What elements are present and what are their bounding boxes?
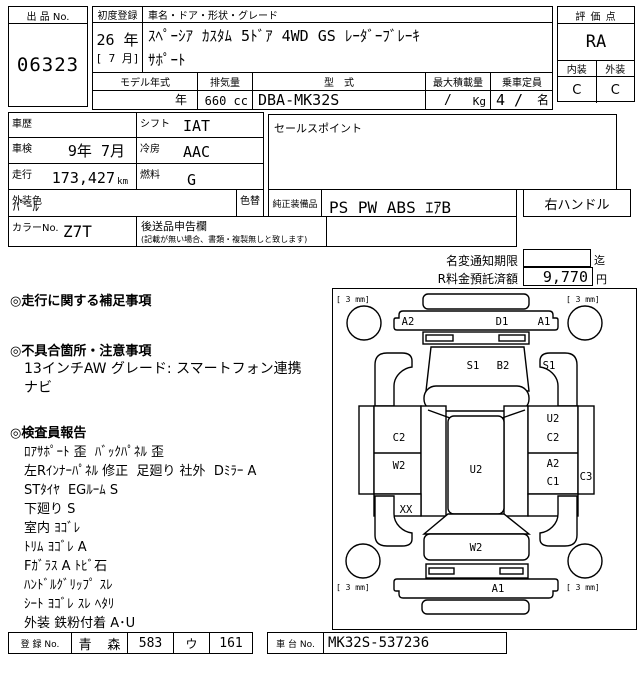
interior-label: 内装 [558, 61, 597, 76]
chassis-no: MK32S-537236 [324, 633, 506, 653]
diagram-code: A1 [492, 583, 505, 595]
sales-point-box: セールスポイント [268, 114, 617, 190]
right-pillar-column [504, 406, 528, 516]
rear-right-tire [568, 544, 602, 578]
shift-value: IAT [183, 117, 210, 135]
reg-number: 161 [210, 633, 252, 653]
tire-depth-front-right: [ 3 mm] [566, 295, 600, 304]
history-label: 車歴 [12, 115, 32, 130]
diagram-code: XX [400, 504, 413, 516]
report-line: Fｶﾞﾗｽ A ﾄﾋﾞ石 [24, 555, 107, 573]
first-registration-label: 初度登録 [93, 7, 143, 23]
max-load-slash: / [444, 93, 452, 108]
model-code-value: DBA-MK32S [253, 91, 426, 110]
diagram-code: W2 [470, 542, 483, 554]
tire-depth-front-left: [ 3 mm] [336, 295, 370, 304]
left-front-fender [375, 353, 412, 406]
tire-depth-rear-left: [ 3 mm] [336, 583, 370, 592]
report-line: ｼｰﾄ ﾖｺﾞﾚ ｽﾚ ﾍﾀﾘ [24, 593, 114, 611]
diagram-code: C3 [580, 471, 593, 483]
reg-kana: ウ [174, 633, 210, 653]
capacity-number: 4 / [496, 91, 523, 109]
handle-box: 右ハンドル [523, 189, 631, 217]
model-code-label: 型 式 [253, 73, 426, 91]
fuel-cell: 燃料 G [136, 163, 264, 191]
left-door-panels [374, 406, 421, 494]
equipment-row: 純正装備品 PS PW ABS ｴｱB [268, 189, 517, 217]
report-line: ﾄﾘﾑ ﾖｺﾞﾚ A [24, 536, 87, 554]
first-registration-month: [ 7 月] [93, 50, 142, 66]
mileage-unit: km [117, 177, 128, 187]
model-code-text: DBA-MK32S [258, 91, 339, 109]
damage-diagram: A2 D1 A1 S1 B2 S1 C2 W2 U2 U2 C2 A2 C1 C… [332, 288, 637, 630]
exterior-color-cell: 外装色 ﾊﾟｰﾙ 色替 [8, 189, 264, 218]
chassis-table: 車 台 No. MK32S-537236 [267, 632, 507, 654]
score-label: 評 価 点 [558, 7, 634, 24]
max-load-value: / Kg [426, 91, 491, 110]
car-name-label: 車名・ドア・形状・グレード [143, 7, 553, 23]
exterior-label: 外装 [597, 61, 635, 76]
rear-cowl-right-lamp [500, 568, 523, 574]
interior-grade: C [558, 77, 597, 103]
late-items-label: 後送品申告欄 [141, 218, 327, 234]
recycle-fee-amount: 9,770 [523, 267, 593, 286]
diagram-code: C2 [393, 432, 406, 444]
diagram-code: U2 [547, 413, 560, 425]
exterior-grade: C [597, 77, 635, 103]
diagram-code: B2 [497, 360, 510, 372]
diagram-code: A2 [547, 458, 560, 470]
front-cowl-left-vent [426, 335, 453, 341]
report-line: STﾀｲﾔ EGﾙｰﾑ S [24, 479, 118, 497]
late-items-note: (記載が無い場合、書類・複製無しと致します) [141, 234, 327, 245]
fuel-label: 燃料 [140, 166, 160, 181]
front-left-tire [347, 306, 381, 340]
name-change-label: 名変通知期限 [400, 252, 518, 269]
shift-cell: シフト IAT [136, 112, 264, 139]
left-pillar-column [421, 406, 446, 516]
diagram-code: U2 [470, 464, 483, 476]
rear-bumper [394, 579, 558, 598]
defect-note-line: ナビ [24, 377, 52, 397]
report-line: 下廻り S [24, 498, 75, 516]
name-change-field [523, 249, 591, 267]
rating-box: 評 価 点 RA 内装 外装 C C [557, 6, 635, 102]
front-right-tire [568, 306, 602, 340]
diagram-code: A1 [538, 316, 551, 328]
history-cell: 車歴 [8, 112, 138, 139]
lot-number: 06323 [9, 24, 87, 106]
model-year-text: 年 [175, 91, 187, 108]
fuel-value: G [187, 171, 196, 189]
late-items-cell: 後送品申告欄 (記載が無い場合、書類・複製無しと致します) [136, 216, 328, 247]
report-line: ﾛｱｻﾎﾟｰﾄ 歪 ﾊﾞｯｸﾊﾟﾈﾙ 歪 [24, 441, 164, 459]
mileage-cell: 走行 173,427 km [8, 163, 138, 191]
report-line: 左Rｲﾝﾅｰﾊﾟﾈﾙ 修正 足廻り 社外 Dﾐﾗｰ A [24, 460, 256, 478]
vehicle-header-table: 初度登録 車名・ドア・形状・グレード 26 年 [ 7 月] ｽﾍﾟｰｼｱ ｶｽ… [92, 6, 553, 110]
defect-notes-title: ◎不具合箇所・注意事項 [10, 340, 151, 359]
diagram-code: S1 [467, 360, 480, 372]
recycle-fee-label: R料金預託済額 [400, 270, 518, 287]
reg-area: 青 森 [72, 633, 128, 653]
displacement-text: 660 cc [205, 94, 248, 108]
report-line: ﾊﾝﾄﾞﾙｸﾞﾘｯﾌﾟ ｽﾚ [24, 574, 113, 592]
front-cowl-right-vent [499, 335, 525, 341]
recycle-fee-suffix: 円 [596, 271, 607, 287]
mileage-value: 173,427 [52, 169, 115, 187]
name-change-suffix: 迄 [594, 252, 605, 268]
report-line: 外装 鉄粉付着 A･U [24, 612, 135, 630]
front-grille-bar [423, 294, 529, 309]
tire-depth-rear-right: [ 3 mm] [566, 583, 600, 592]
max-load-label: 最大積載量 [426, 73, 491, 91]
mileage-notes-title: ◎走行に関する補足事項 [10, 290, 151, 309]
diagram-code: C2 [547, 432, 560, 444]
sales-point-label: セールスポイント [274, 122, 362, 135]
car-name-line1: ｽﾍﾟｰｼｱ ｶｽﾀﾑ 5ﾄﾞｱ 4WD GS ﾚｰﾀﾞｰﾌﾞﾚｰｷ [148, 24, 553, 48]
displacement-value: 660 cc [198, 91, 253, 110]
late-items-empty-cell [326, 216, 517, 247]
reg-no-label: 登 録 No. [9, 633, 72, 653]
inspection-value: 9年 7月 [68, 140, 125, 161]
capacity-value: 4 / 名 [491, 91, 553, 110]
rear-left-tire [346, 544, 380, 578]
diagram-code: C1 [547, 476, 560, 488]
car-expanded-view: A2 D1 A1 S1 B2 S1 C2 W2 U2 U2 C2 A2 C1 C… [333, 289, 635, 628]
inspection-cell: 車検 9年 7月 [8, 137, 138, 165]
diagram-code: W2 [393, 460, 406, 472]
reg-class: 583 [128, 633, 174, 653]
inspection-label: 車検 [12, 140, 32, 155]
left-rocker-panel [359, 406, 374, 494]
rear-lower-bar [422, 600, 529, 614]
color-no-cell: カラーNo. Z7T [8, 216, 138, 247]
defect-note-line: 13インチAW グレード: スマートフォン連携 [24, 358, 302, 378]
lot-number-box: 出 品 No. 06323 [8, 6, 88, 107]
exterior-color-value: ﾊﾟｰﾙ [13, 196, 39, 215]
capacity-label: 乗車定員 [491, 73, 553, 91]
max-load-unit: Kg [473, 95, 486, 108]
displacement-label: 排気量 [198, 73, 253, 91]
score-value: RA [558, 24, 634, 61]
report-line: 室内 ﾖｺﾞﾚ [24, 517, 80, 535]
capacity-unit: 名 [537, 91, 549, 108]
rear-window [424, 514, 529, 534]
inspector-report-title: ◎検査員報告 [10, 422, 86, 441]
shift-label: シフト [140, 115, 170, 130]
front-bumper [394, 311, 558, 330]
rear-cowl-left-lamp [429, 568, 454, 574]
ac-cell: 冷房 AAC [136, 137, 264, 165]
color-no-label: カラーNo. [12, 219, 59, 234]
color-change-cell: 色替 [236, 190, 263, 217]
registration-table: 登 録 No. 青 森 583 ウ 161 [8, 632, 253, 654]
ac-value: AAC [183, 143, 210, 161]
diagram-code: D1 [496, 316, 509, 328]
car-name-value: ｽﾍﾟｰｼｱ ｶｽﾀﾑ 5ﾄﾞｱ 4WD GS ﾚｰﾀﾞｰﾌﾞﾚｰｷ ｻﾎﾟｰﾄ [143, 23, 553, 73]
diagram-code: S1 [543, 360, 556, 372]
model-year-label: モデル年式 [93, 73, 198, 91]
color-no-value: Z7T [63, 222, 92, 241]
ac-label: 冷房 [140, 140, 160, 155]
chassis-no-label: 車 台 No. [268, 633, 324, 653]
car-name-line2: ｻﾎﾟｰﾄ [148, 48, 553, 72]
mileage-label: 走行 [12, 166, 32, 181]
lot-number-label: 出 品 No. [9, 7, 87, 24]
auction-sheet: 出 品 No. 06323 初度登録 車名・ドア・形状・グレード 26 年 [ … [0, 0, 640, 680]
model-year-value: 年 [93, 91, 198, 110]
equipment-value: PS PW ABS ｴｱB [329, 194, 451, 218]
equipment-label: 純正装備品 [269, 190, 322, 216]
diagram-code: A2 [402, 316, 415, 328]
first-registration-value: 26 年 [ 7 月] [93, 23, 143, 73]
first-registration-year: 26 年 [93, 29, 142, 50]
